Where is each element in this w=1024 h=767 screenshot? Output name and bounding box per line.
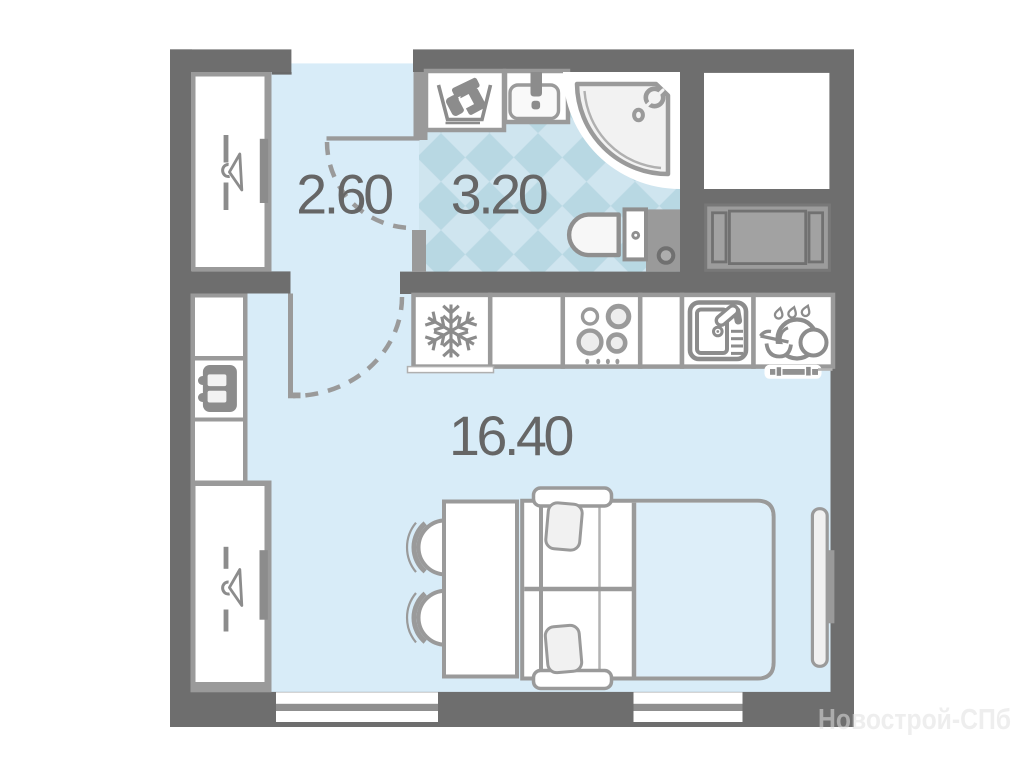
svg-text:2.60: 2.60 (296, 163, 392, 225)
svg-text:3.20: 3.20 (451, 163, 547, 225)
svg-text:Новострой-СПб: Новострой-СПб (818, 704, 1011, 736)
svg-text:16.40: 16.40 (449, 405, 572, 467)
